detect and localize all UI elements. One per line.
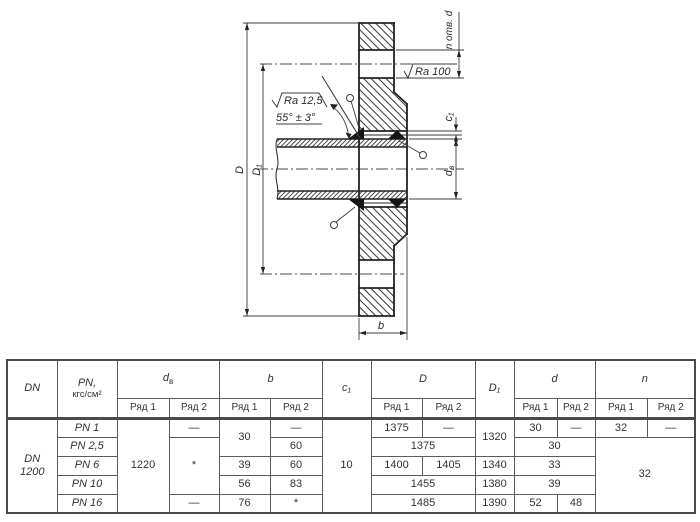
header-D1: D₁ [475,360,514,418]
header-D: D [371,360,475,398]
header-b: b [219,360,322,398]
cell-r1-dv2: — [169,418,219,437]
header-dn: DN [7,360,57,418]
cell-r5-d-ryad2: 48 [557,494,595,513]
cell-c1: 10 [322,418,371,513]
cell-dv-ryad1: 1220 [117,418,169,513]
cell-r1-d-ryad1: 30 [514,418,557,437]
header-n: n [595,360,695,398]
cell-r5-D1: 1390 [475,494,514,513]
cell-r4-b1: 56 [219,475,270,494]
cell-r2-d: 30 [514,437,595,456]
cell-r2-b2: 60 [270,437,322,456]
cell-r1-b2: — [270,418,322,437]
cell-r4-b2: 83 [270,475,322,494]
subheader-d-ryad2: Ряд 2 [557,398,595,418]
cell-r1-pn: PN 1 [57,418,117,437]
bevel-angle-label: 55° ± 3° [276,112,316,124]
cell-r3-b2: 60 [270,456,322,475]
cell-r5-dv2: — [169,494,219,513]
cell-r1-d-ryad2: — [557,418,595,437]
cell-r3-D1: 1340 [475,456,514,475]
holes-note-label: n отв. d [444,10,455,49]
roughness-bevel-label: Ra 12,5 [284,95,323,107]
flange-outline [359,23,407,316]
cell-r3-D-ryad1: 1400 [371,456,422,475]
cell-r2-D: 1375 [371,437,475,456]
header-c1: c₁ [322,360,371,418]
cell-r2-pn: PN 2,5 [57,437,117,456]
cell-r3-d: 33 [514,456,595,475]
cell-r1-b1: 30 [219,418,270,456]
dim-label-D1: D₁ [251,164,263,176]
cell-r1-n-ryad2: — [647,418,695,437]
cell-r5-d-ryad1: 52 [514,494,557,513]
subheader-n-ryad2: Ряд 2 [647,398,695,418]
cell-r1-D1: 1320 [475,418,514,456]
cell-r3-pn: PN 6 [57,456,117,475]
cell-dn: DN1200 [7,418,57,513]
cell-r1-D-ryad1: 1375 [371,418,422,437]
flange-drawing: D D₁ dв c₁ n отв. d b Ra 100 Ra 12,5 55°… [0,0,700,356]
subheader-d-ryad1: Ряд 1 [514,398,557,418]
roughness-face-label: Ra 100 [415,66,451,78]
cell-r2-dv2: * [169,437,219,494]
cell-r5-b2: * [270,494,322,513]
cell-r4-pn: PN 10 [57,475,117,494]
subheader-dv-ryad2: Ряд 2 [169,398,219,418]
cell-r2-n: 32 [595,437,695,513]
dim-label-c1: c₁ [443,112,455,122]
dim-label-dv: dв [443,165,456,176]
subheader-D-ryad2: Ряд 2 [422,398,475,418]
dimensions-table: DN PN, кгс/см² dв b c₁ D D₁ d n Ряд 1 Ря… [6,359,696,514]
header-pn: PN, кгс/см² [57,360,117,418]
cell-r5-D: 1485 [371,494,475,513]
cell-r5-pn: PN 16 [57,494,117,513]
cell-r4-D1: 1380 [475,475,514,494]
cell-r1-n-ryad1: 32 [595,418,647,437]
subheader-b-ryad2: Ряд 2 [270,398,322,418]
dim-label-b: b [378,320,384,332]
header-pn-line1: PN, [58,377,117,390]
subheader-b-ryad1: Ряд 1 [219,398,270,418]
header-d: d [514,360,595,398]
subheader-dv-ryad1: Ряд 1 [117,398,169,418]
header-dv: dв [117,360,219,398]
page: { "drawing": { "dim_D": "D", "dim_D1": "… [0,0,700,522]
cell-r4-d: 39 [514,475,595,494]
hatch-regions [277,23,407,316]
subheader-n-ryad1: Ряд 1 [595,398,647,418]
dim-label-D: D [234,166,246,174]
subheader-D-ryad1: Ряд 1 [371,398,422,418]
cell-r4-D: 1455 [371,475,475,494]
cell-r5-b1: 76 [219,494,270,513]
cell-r1-D-ryad2: — [422,418,475,437]
cell-r3-D-ryad2: 1405 [422,456,475,475]
header-pn-line2: кгс/см² [58,390,117,401]
cell-r3-b1: 39 [219,456,270,475]
